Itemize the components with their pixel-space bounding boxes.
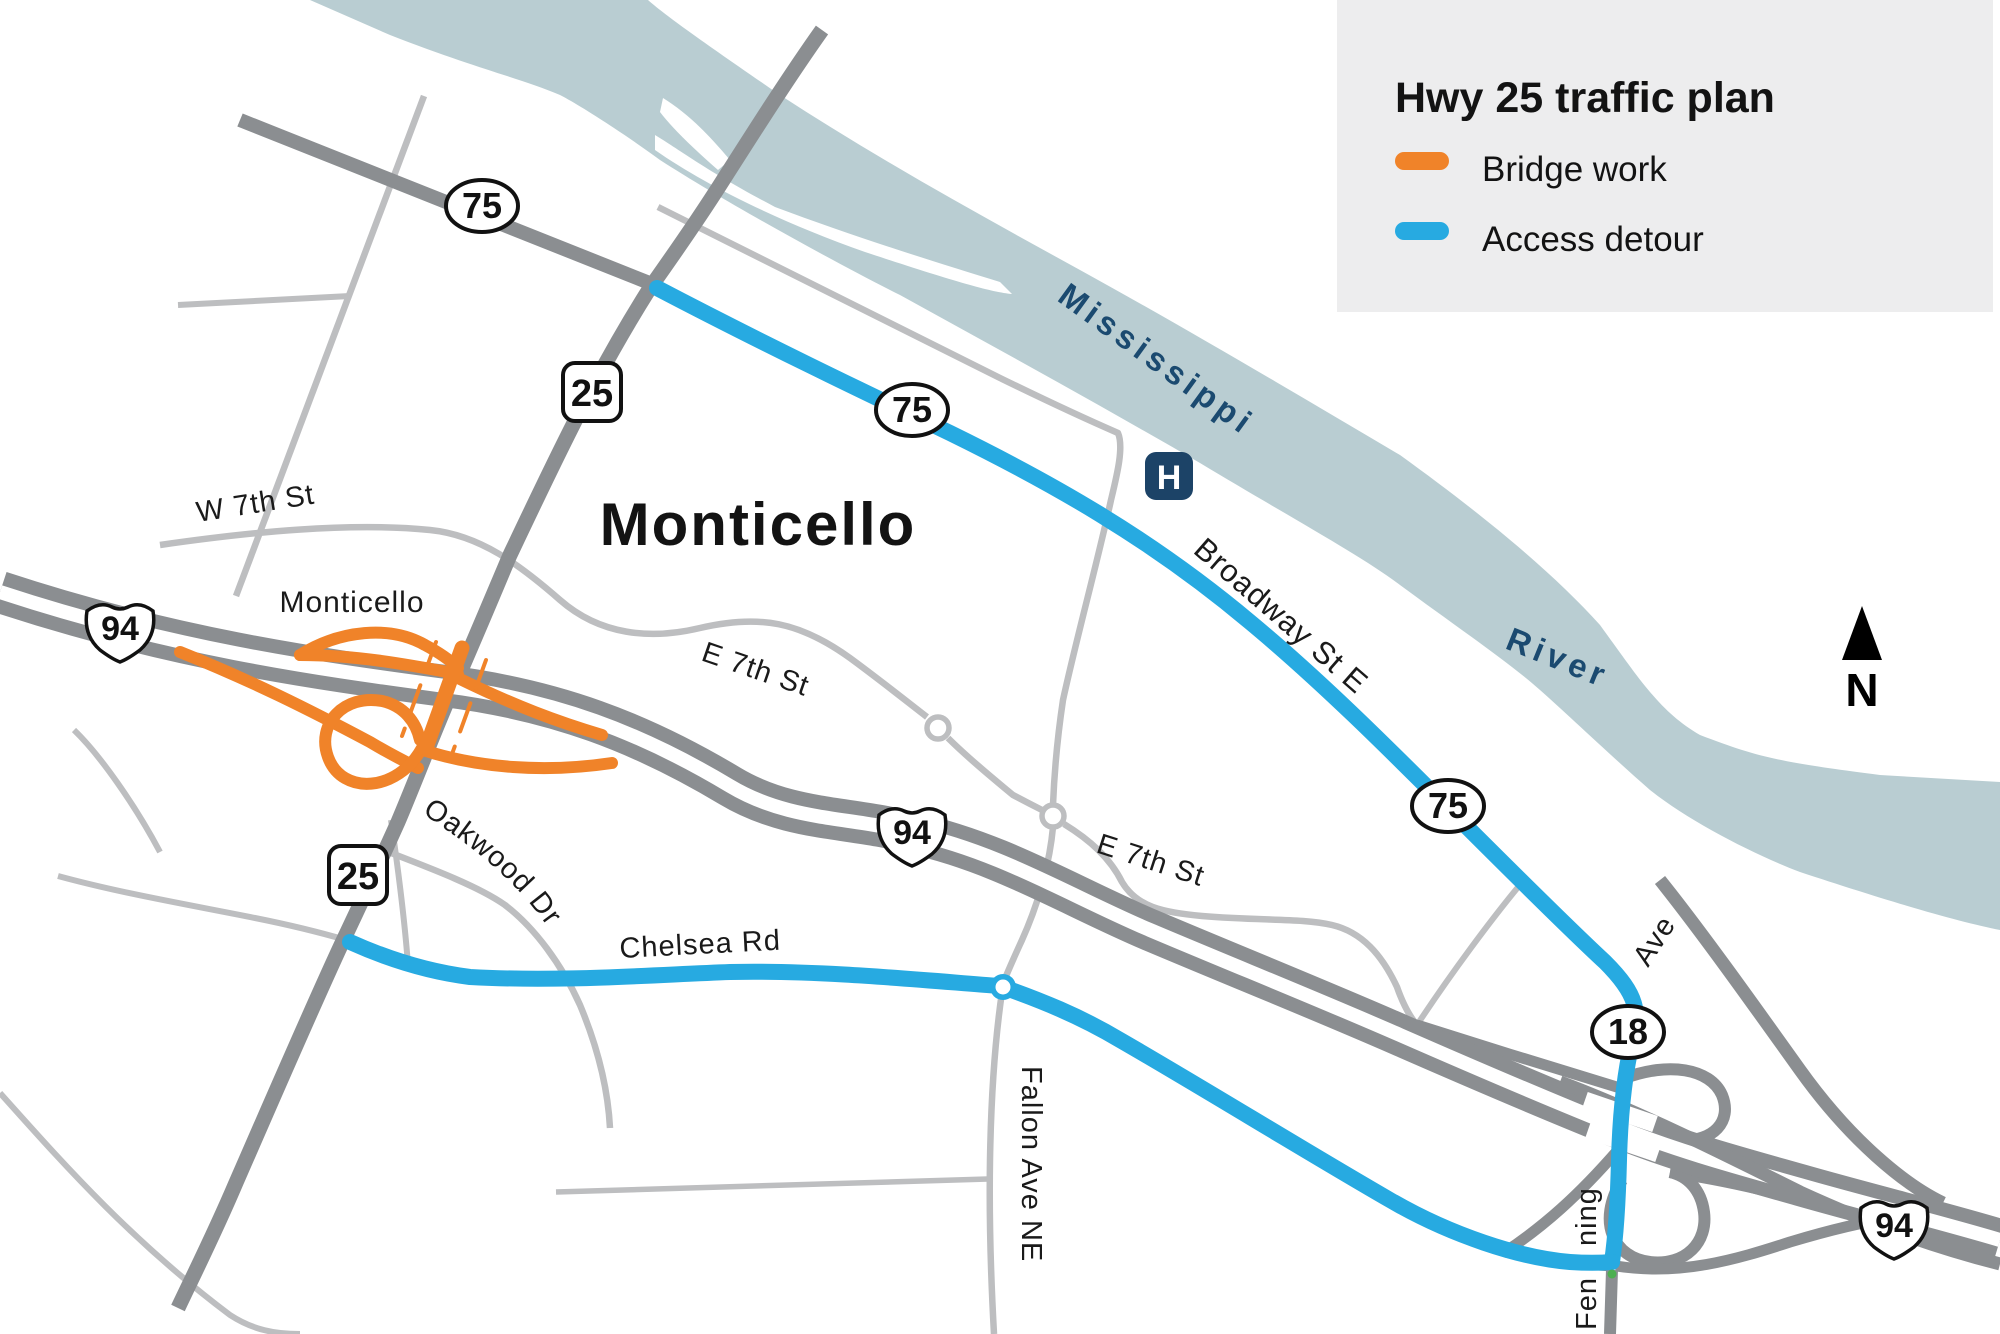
chelsea-fallon-node (996, 980, 1011, 995)
road-e7th-mid (948, 738, 1042, 810)
roundabout-e7th-east (1042, 805, 1064, 827)
shield-18: 18 (1592, 1006, 1664, 1058)
label-oakwood-dr: Oakwood Dr (418, 792, 568, 931)
road-sw-short (74, 730, 160, 852)
label-broadway-st-e: Broadway St E (1187, 531, 1375, 700)
legend-swatch-bridge-work (1395, 152, 1449, 170)
shield-18-num: 18 (1608, 1011, 1648, 1052)
hospital-icon-letter: H (1157, 459, 1182, 497)
road-cross-south (556, 1179, 988, 1192)
legend-swatch-access-detour (1395, 222, 1449, 240)
road-fenning-stub-south (1610, 1270, 1612, 1334)
shield-75-c: 75 (1412, 780, 1484, 832)
shield-94-a-num: 94 (101, 610, 139, 648)
shield-25-b: 25 (329, 846, 387, 904)
shield-25-a-num: 25 (571, 373, 613, 415)
road-fallon-south (990, 992, 1002, 1334)
shield-25-b-num: 25 (337, 856, 379, 898)
detour-chelsea (350, 942, 1612, 1263)
shield-75-a: 75 (446, 180, 518, 232)
legend-title: Hwy 25 traffic plan (1395, 74, 1775, 122)
road-oakwood (378, 848, 610, 1128)
shield-94-c-num: 94 (1875, 1207, 1913, 1245)
shield-75-b-num: 75 (892, 389, 932, 430)
label-chelsea-rd: Chelsea Rd (619, 925, 782, 965)
north-arrow: N (1842, 606, 1882, 716)
shield-75-c-num: 75 (1428, 785, 1468, 826)
hospital-icon: H (1145, 452, 1193, 500)
north-arrow-label: N (1845, 664, 1878, 716)
label-ave: Ave (1627, 910, 1682, 971)
label-fenning-upper: ning (1571, 1187, 1603, 1246)
road-nw-vertical (236, 96, 424, 596)
shield-25-a: 25 (563, 363, 621, 421)
label-w7th-st: W 7th St (194, 479, 317, 529)
shield-94-b-num: 94 (893, 814, 931, 852)
detour-broadway-fenning (657, 288, 1636, 1262)
shield-75-b: 75 (876, 384, 948, 436)
legend-label-access-detour: Access detour (1482, 220, 1704, 259)
legend-label-bridge-work: Bridge work (1482, 150, 1667, 189)
roundabout-e7th-west (927, 717, 949, 739)
road-sw-chelsea-west (58, 876, 346, 940)
shield-75-a-num: 75 (462, 185, 502, 226)
city-label-monticello: Monticello (600, 491, 917, 558)
label-e7th-st-west: E 7th St (698, 636, 814, 702)
junction-marker-dot (1608, 1270, 1617, 1279)
legend: Hwy 25 traffic plan Bridge work Access d… (1337, 0, 1993, 312)
label-fallon-ave-ne: Fallon Ave NE (1015, 1066, 1047, 1262)
road-ne-connector-light (1417, 880, 1524, 1025)
map-canvas: Monticello Monticello W 7th St E 7th St … (0, 0, 2000, 1334)
road-nw-horizontal (178, 296, 350, 305)
traffic-plan-map: Monticello Monticello W 7th St E 7th St … (0, 0, 2000, 1334)
shield-94-c: 94 (1860, 1202, 1928, 1259)
north-arrow-icon (1842, 606, 1882, 660)
label-fenning-lower: Fen (1571, 1277, 1603, 1330)
label-e7th-st-east: E 7th St (1093, 828, 1209, 893)
exit-label-monticello: Monticello (279, 586, 424, 619)
